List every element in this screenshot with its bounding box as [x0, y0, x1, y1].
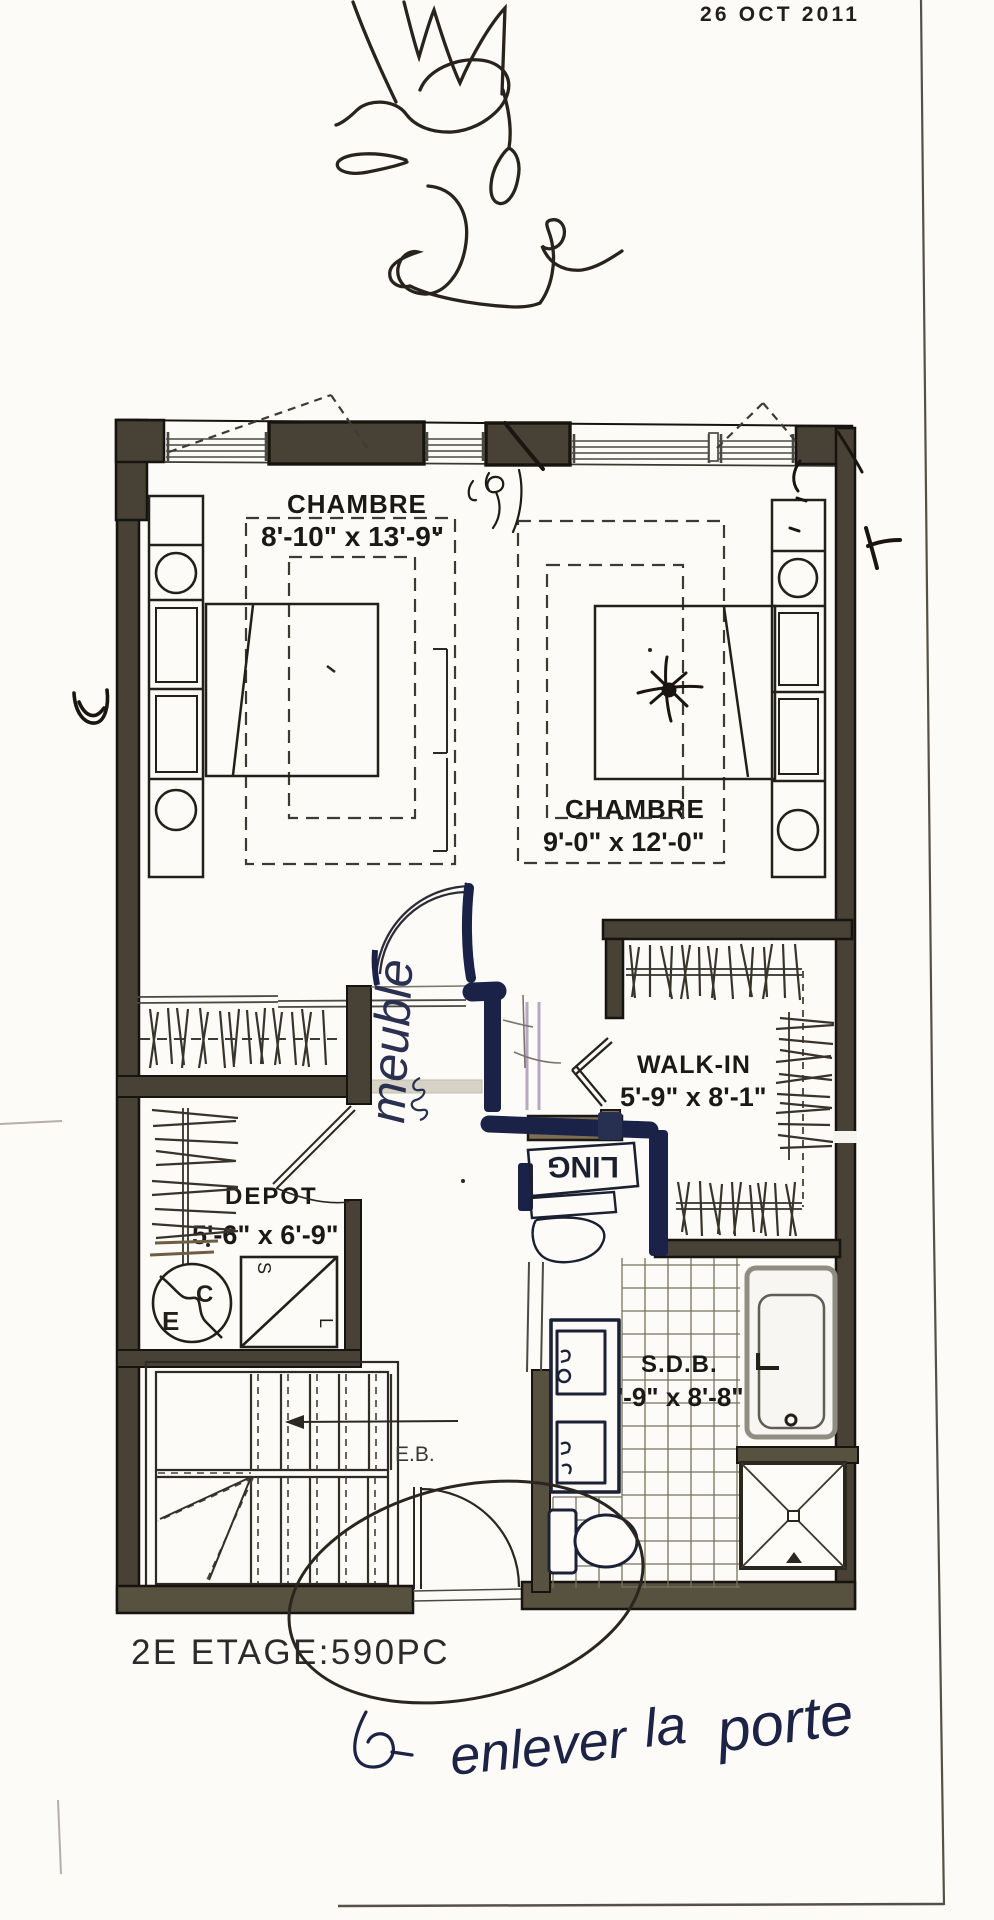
svg-text:WALK-IN: WALK-IN — [637, 1051, 751, 1079]
svg-text:la: la — [641, 1695, 689, 1759]
svg-text:26 OCT 2011: 26 OCT 2011 — [700, 3, 860, 26]
svg-text:meuble: meuble — [359, 958, 424, 1125]
svg-text:5'-6" x 6'-9": 5'-6" x 6'-9" — [192, 1220, 339, 1250]
svg-text:LING: LING — [547, 1150, 619, 1183]
svg-text:2E ETAGE:590PC: 2E ETAGE:590PC — [131, 1633, 450, 1672]
svg-text:E.B.: E.B. — [395, 1443, 435, 1466]
svg-text:C: C — [196, 1281, 213, 1308]
svg-text:E: E — [162, 1306, 179, 1336]
svg-text:S: S — [254, 1262, 274, 1274]
svg-text:5'-9" x 8'-1": 5'-9" x 8'-1" — [620, 1082, 767, 1112]
svg-text:9'-0" x 12'-0": 9'-0" x 12'-0" — [543, 827, 705, 857]
svg-text:S.D.B.: S.D.B. — [641, 1351, 718, 1378]
svg-text:DEPOT: DEPOT — [225, 1183, 318, 1210]
svg-text:CHAMBRE: CHAMBRE — [287, 489, 427, 519]
svg-text:L: L — [316, 1318, 336, 1328]
svg-text:'-9" x 8'-8": '-9" x 8'-8" — [617, 1382, 744, 1412]
svg-text:8'-10" x 13'-9": 8'-10" x 13'-9" — [261, 521, 444, 552]
